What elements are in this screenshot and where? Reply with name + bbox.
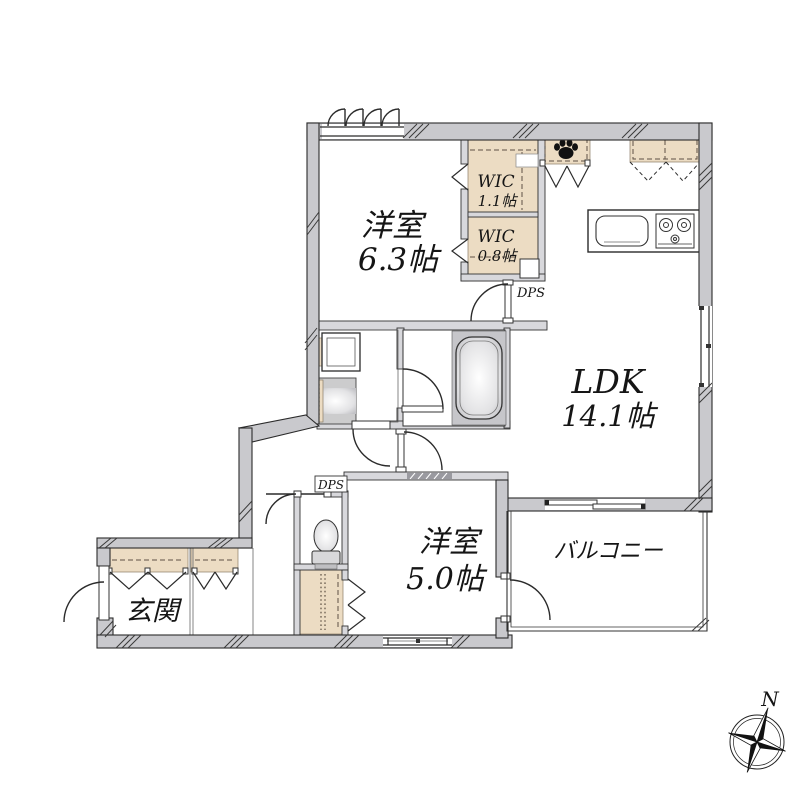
kitchen-sink-icon [596, 216, 648, 246]
balcony-rail [507, 511, 707, 631]
wic2-bifold-door [452, 239, 468, 263]
compass-rose: N [719, 687, 797, 782]
bedroom2-bottom-window [383, 636, 452, 647]
washing-machine-icon [322, 333, 360, 371]
ldk-size: 14.1帖 [561, 399, 659, 433]
dps-lower-label: DPS [317, 478, 344, 492]
entrance-door [64, 566, 109, 622]
washroom-door [352, 421, 390, 466]
wic2-name: WIC [477, 227, 514, 247]
bathtub-icon [452, 331, 506, 425]
wic2-size: 0.8帖 [478, 247, 519, 265]
floor-plan-page: 洋室 6.3帖 WIC 1.1帖 WIC 0.8帖 DPS LDK 14.1帖 … [0, 0, 800, 800]
balcony-sliding-window [545, 499, 645, 510]
toilet-icon [312, 520, 340, 569]
bedroom2-size: 5.0帖 [406, 562, 488, 597]
dps-lower: DPS [315, 476, 347, 492]
bedroom1-name: 洋室 [361, 208, 427, 244]
bedroom2-sliding-door [407, 473, 452, 479]
dps-upper-box [520, 259, 539, 278]
hall-ldk-door [396, 429, 442, 472]
bedroom2-name: 洋室 [419, 525, 483, 560]
bedroom1-door [471, 280, 513, 323]
kitchen-counter [588, 210, 700, 252]
wic1-name: WIC [477, 172, 514, 192]
ldk-name: LDK [570, 362, 646, 401]
washbasin-icon [315, 378, 356, 424]
balcony-door [501, 573, 550, 622]
bedroom1-size: 6.3帖 [358, 242, 442, 278]
entrance-name: 玄関 [125, 596, 183, 627]
wic1-bifold-door [452, 164, 468, 190]
ldk-side-window [698, 306, 712, 387]
bedroom1-top-window [320, 109, 404, 139]
floor-plan-drawing: 洋室 6.3帖 WIC 1.1帖 WIC 0.8帖 DPS LDK 14.1帖 … [0, 0, 800, 800]
dps-upper-label: DPS [516, 286, 545, 301]
balcony-name: バルコニー [553, 539, 664, 564]
compass-north-label: N [760, 687, 780, 711]
wic1-size: 1.1帖 [478, 192, 519, 210]
